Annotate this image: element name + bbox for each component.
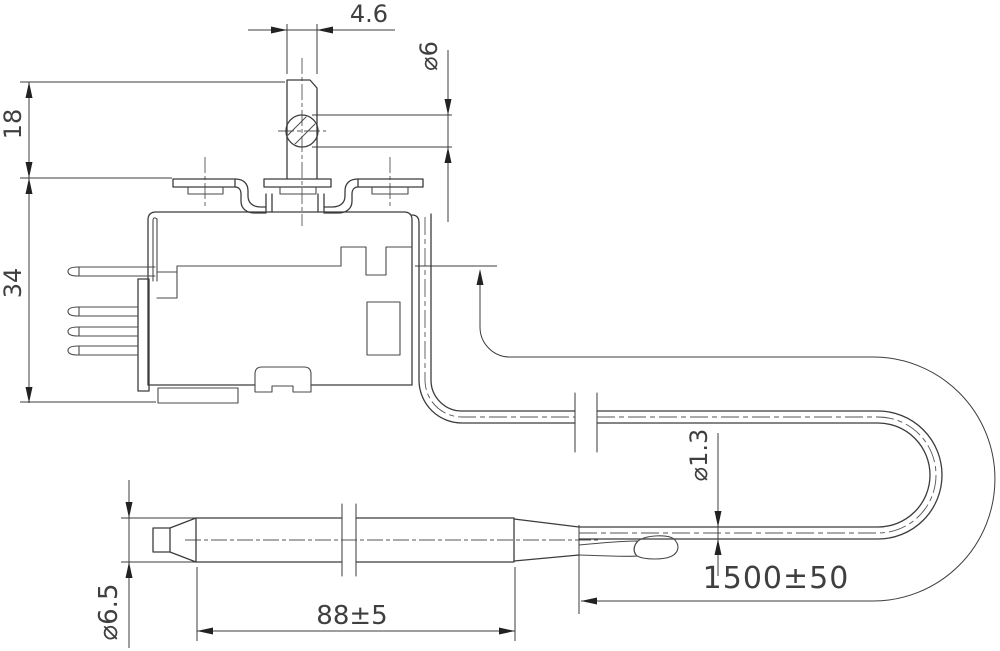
thermostat-body [138, 212, 412, 403]
dim-stem-width-label: 4.6 [350, 0, 388, 28]
dim-bulb-diameter-label: ⌀6.5 [94, 583, 124, 640]
capillary-break-marks [575, 393, 597, 452]
capillary-tube [412, 214, 942, 539]
drawing-canvas: 4.6 ⌀6 18 34 ⌀1.3 1500±50 [0, 0, 1000, 651]
hatch-pattern [268, 97, 334, 163]
dim-stem-width: 4.6 [248, 0, 395, 74]
centerlines [185, 58, 600, 540]
dim-hole-diameter: ⌀6 [312, 41, 452, 222]
dim-bulb-diameter: ⌀6.5 [94, 480, 200, 648]
dim-stem-height-label: 18 [0, 109, 27, 140]
terminal-pins [68, 267, 155, 355]
dim-capillary-diameter-label: ⌀1.3 [685, 429, 713, 482]
dim-stem-height: 18 [0, 82, 285, 403]
technical-drawing: 4.6 ⌀6 18 34 ⌀1.3 1500±50 [0, 0, 1000, 651]
dim-capillary-diameter: ⌀1.3 [685, 429, 722, 576]
dim-bulb-length-label: 88±5 [316, 601, 387, 631]
dim-body-height-label: 34 [0, 268, 27, 299]
dim-bulb-length: 88±5 [197, 567, 515, 641]
adjustment-screw-hole [268, 97, 334, 163]
mounting-bracket [173, 179, 423, 213]
dim-capillary-length-label: 1500±50 [703, 561, 850, 596]
dim-body-height: 34 [0, 178, 33, 403]
dim-hole-diameter-label: ⌀6 [415, 41, 443, 71]
